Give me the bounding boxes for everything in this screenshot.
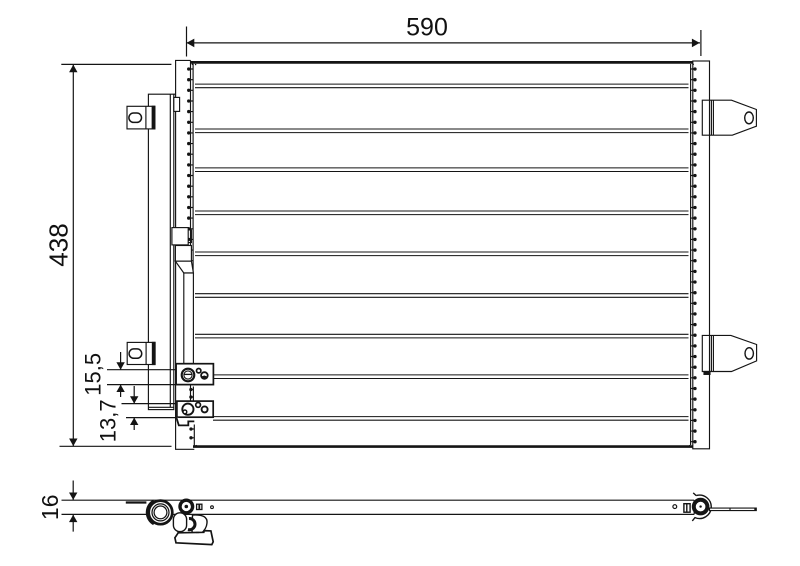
svg-text:438: 438	[44, 223, 74, 266]
svg-text:15,5: 15,5	[81, 353, 106, 396]
svg-text:590: 590	[406, 14, 448, 42]
svg-text:13,7: 13,7	[96, 399, 121, 442]
svg-text:16: 16	[37, 495, 63, 521]
